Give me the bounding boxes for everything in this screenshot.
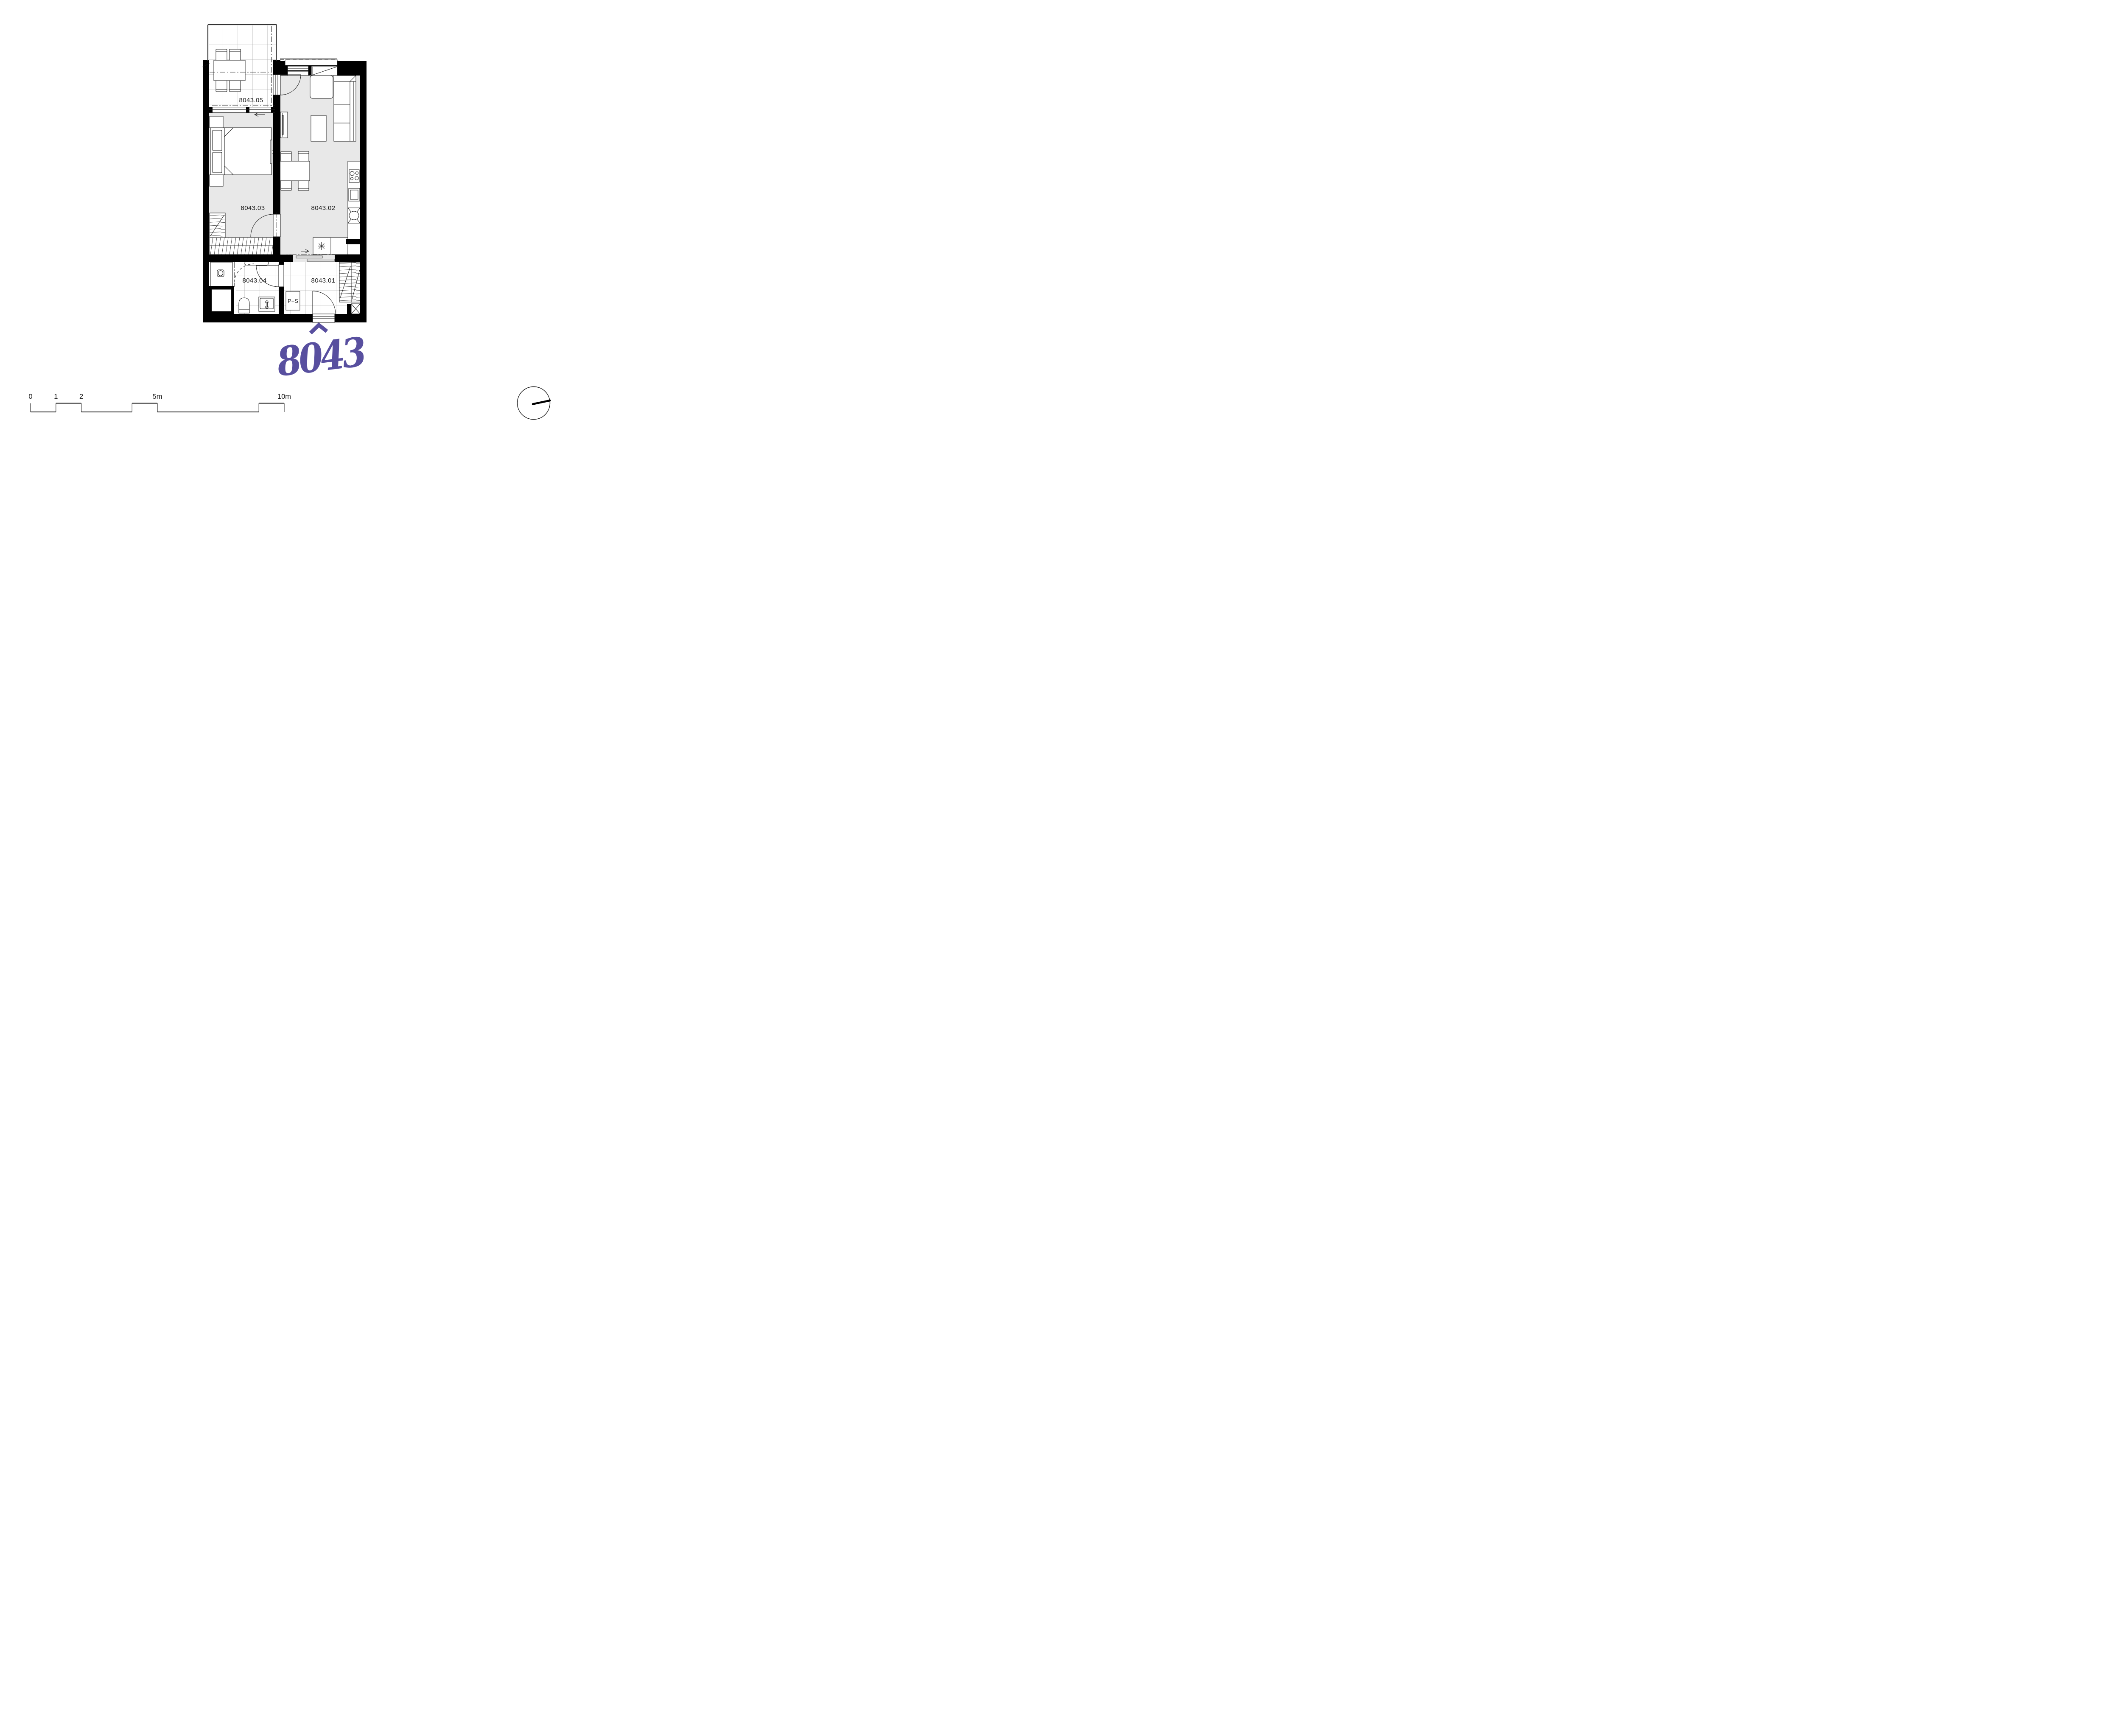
label-bedroom: 8043.03: [241, 204, 265, 212]
partition-bath-hall: [279, 287, 284, 314]
west-wall: [203, 60, 209, 322]
round-basin: [349, 211, 359, 220]
scale-tick-0: 0: [28, 393, 32, 400]
label-balcony: 8043.05: [239, 97, 263, 104]
armchair: [310, 76, 333, 98]
shafts: [210, 262, 232, 286]
floor-plan-page: 8043.05 8043.03 8043.02 8043.04 8043.01 …: [0, 0, 568, 434]
partition-bath-hall: [279, 262, 284, 265]
sofa-body: [334, 76, 356, 141]
scale-tick-2: 2: [79, 393, 83, 400]
partition-bedroom-living: [273, 60, 280, 75]
living-north-window: [280, 59, 337, 76]
kitchen-wall-jog: [346, 239, 367, 244]
dining-table: [278, 161, 310, 181]
balcony-chair: [229, 49, 241, 60]
corner-sofa: [334, 76, 356, 141]
balcony-door-opening: [273, 75, 280, 95]
bedroom-wardrobe-hatch: [210, 238, 273, 255]
scale-tick-5m: 5m: [153, 393, 162, 400]
unit-caret-icon: [311, 325, 327, 333]
shaft-inner: [212, 289, 231, 311]
label-living-room: 8043.02: [311, 204, 335, 212]
bedroom-tv-mount: [272, 150, 274, 153]
dining-chair: [298, 181, 309, 190]
nightstand: [210, 116, 223, 128]
balcony-chair: [216, 81, 227, 92]
balcony-chair: [216, 49, 227, 60]
scale-tick-1: 1: [54, 393, 58, 400]
tv-cabinet: [280, 112, 288, 138]
label-bathroom: 8043.04: [242, 277, 266, 284]
label-washer-dryer: P+S: [288, 298, 298, 304]
burner: [350, 171, 354, 176]
entrance-door-opening: [313, 314, 335, 322]
window-outer-sill: [285, 60, 337, 65]
balcony-table: [214, 60, 245, 81]
counter-end: [348, 244, 360, 255]
toilet: [239, 298, 249, 313]
bathroom-door-opening: [279, 265, 284, 287]
cooktop: [349, 170, 359, 182]
partition-bedroom-living: [273, 95, 280, 214]
sink-basin: [350, 190, 358, 199]
drain-icon-inner: [218, 271, 223, 276]
partition-hall-band-left: [209, 255, 293, 262]
burner: [355, 176, 358, 180]
partition-bedroom-living: [273, 237, 280, 255]
scale-bar: 0 1 2 5m 10m: [28, 393, 291, 412]
south-wall-left: [203, 314, 313, 322]
label-hallway: 8043.01: [311, 277, 335, 284]
coffee-table: [311, 115, 326, 141]
burner: [350, 177, 353, 180]
shaft-wall: [347, 304, 351, 314]
balcony-chair: [229, 81, 241, 92]
nightstand: [210, 175, 223, 186]
burner: [355, 172, 358, 174]
dining-chair: [298, 151, 309, 161]
bedroom-tv: [270, 140, 272, 164]
pillow: [213, 152, 222, 173]
kitchen-bottom-cabinets: [313, 238, 348, 255]
scale-tick-10m: 10m: [277, 393, 291, 400]
tap-body: [266, 302, 268, 307]
dining-chair: [281, 181, 291, 190]
partition-hall-band-right: [335, 255, 367, 262]
pillow: [213, 130, 222, 151]
dining-chair: [281, 151, 291, 161]
east-wall: [360, 61, 367, 322]
orientation-indicator: [518, 387, 550, 420]
balcony-dining-set: [214, 49, 245, 92]
